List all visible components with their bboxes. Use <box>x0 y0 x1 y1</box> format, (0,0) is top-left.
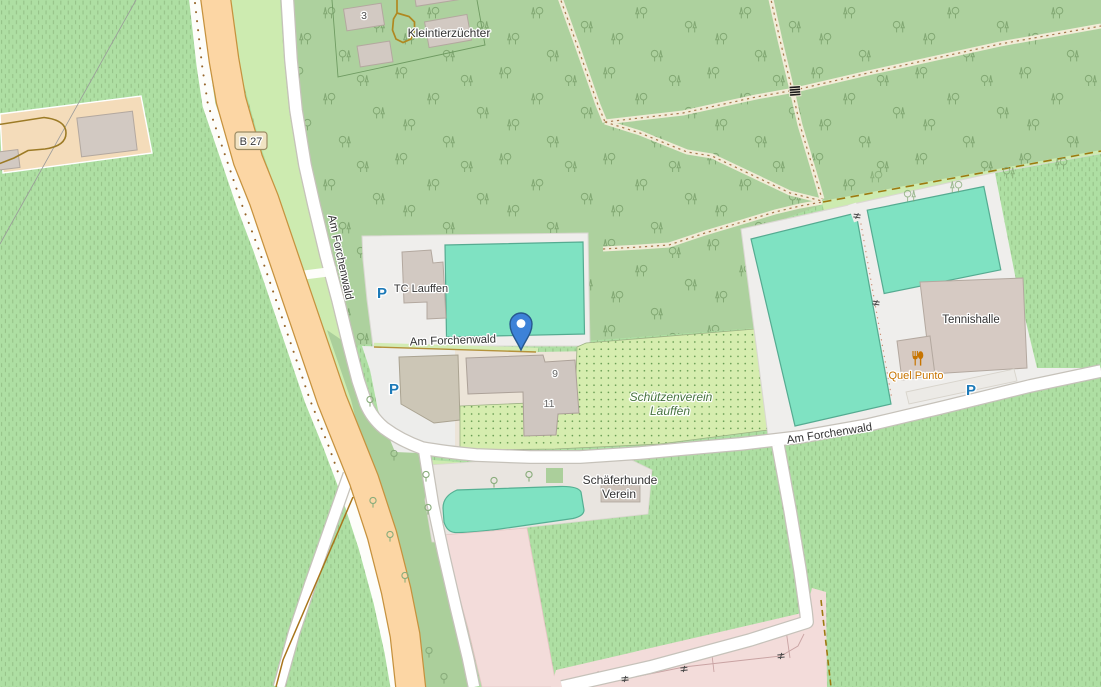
svg-text:Schäferhunde: Schäferhunde <box>583 473 658 487</box>
svg-text:Verein: Verein <box>602 487 636 501</box>
svg-text:Lauffen: Lauffen <box>650 404 690 418</box>
svg-text:Quel Punto: Quel Punto <box>888 370 943 382</box>
svg-text:P: P <box>389 381 399 398</box>
svg-text:TC Lauffen: TC Lauffen <box>394 283 448 295</box>
svg-text:P: P <box>966 382 976 399</box>
svg-text:9: 9 <box>552 368 558 380</box>
svg-text:11: 11 <box>544 398 555 410</box>
svg-text:Tennishalle: Tennishalle <box>942 314 1000 326</box>
svg-text:B 27: B 27 <box>240 136 263 148</box>
svg-text:Schützenverein: Schützenverein <box>630 390 713 404</box>
svg-text:3: 3 <box>361 10 367 22</box>
svg-text:Kleintierzüchter: Kleintierzüchter <box>408 26 491 40</box>
svg-text:P: P <box>377 285 387 302</box>
